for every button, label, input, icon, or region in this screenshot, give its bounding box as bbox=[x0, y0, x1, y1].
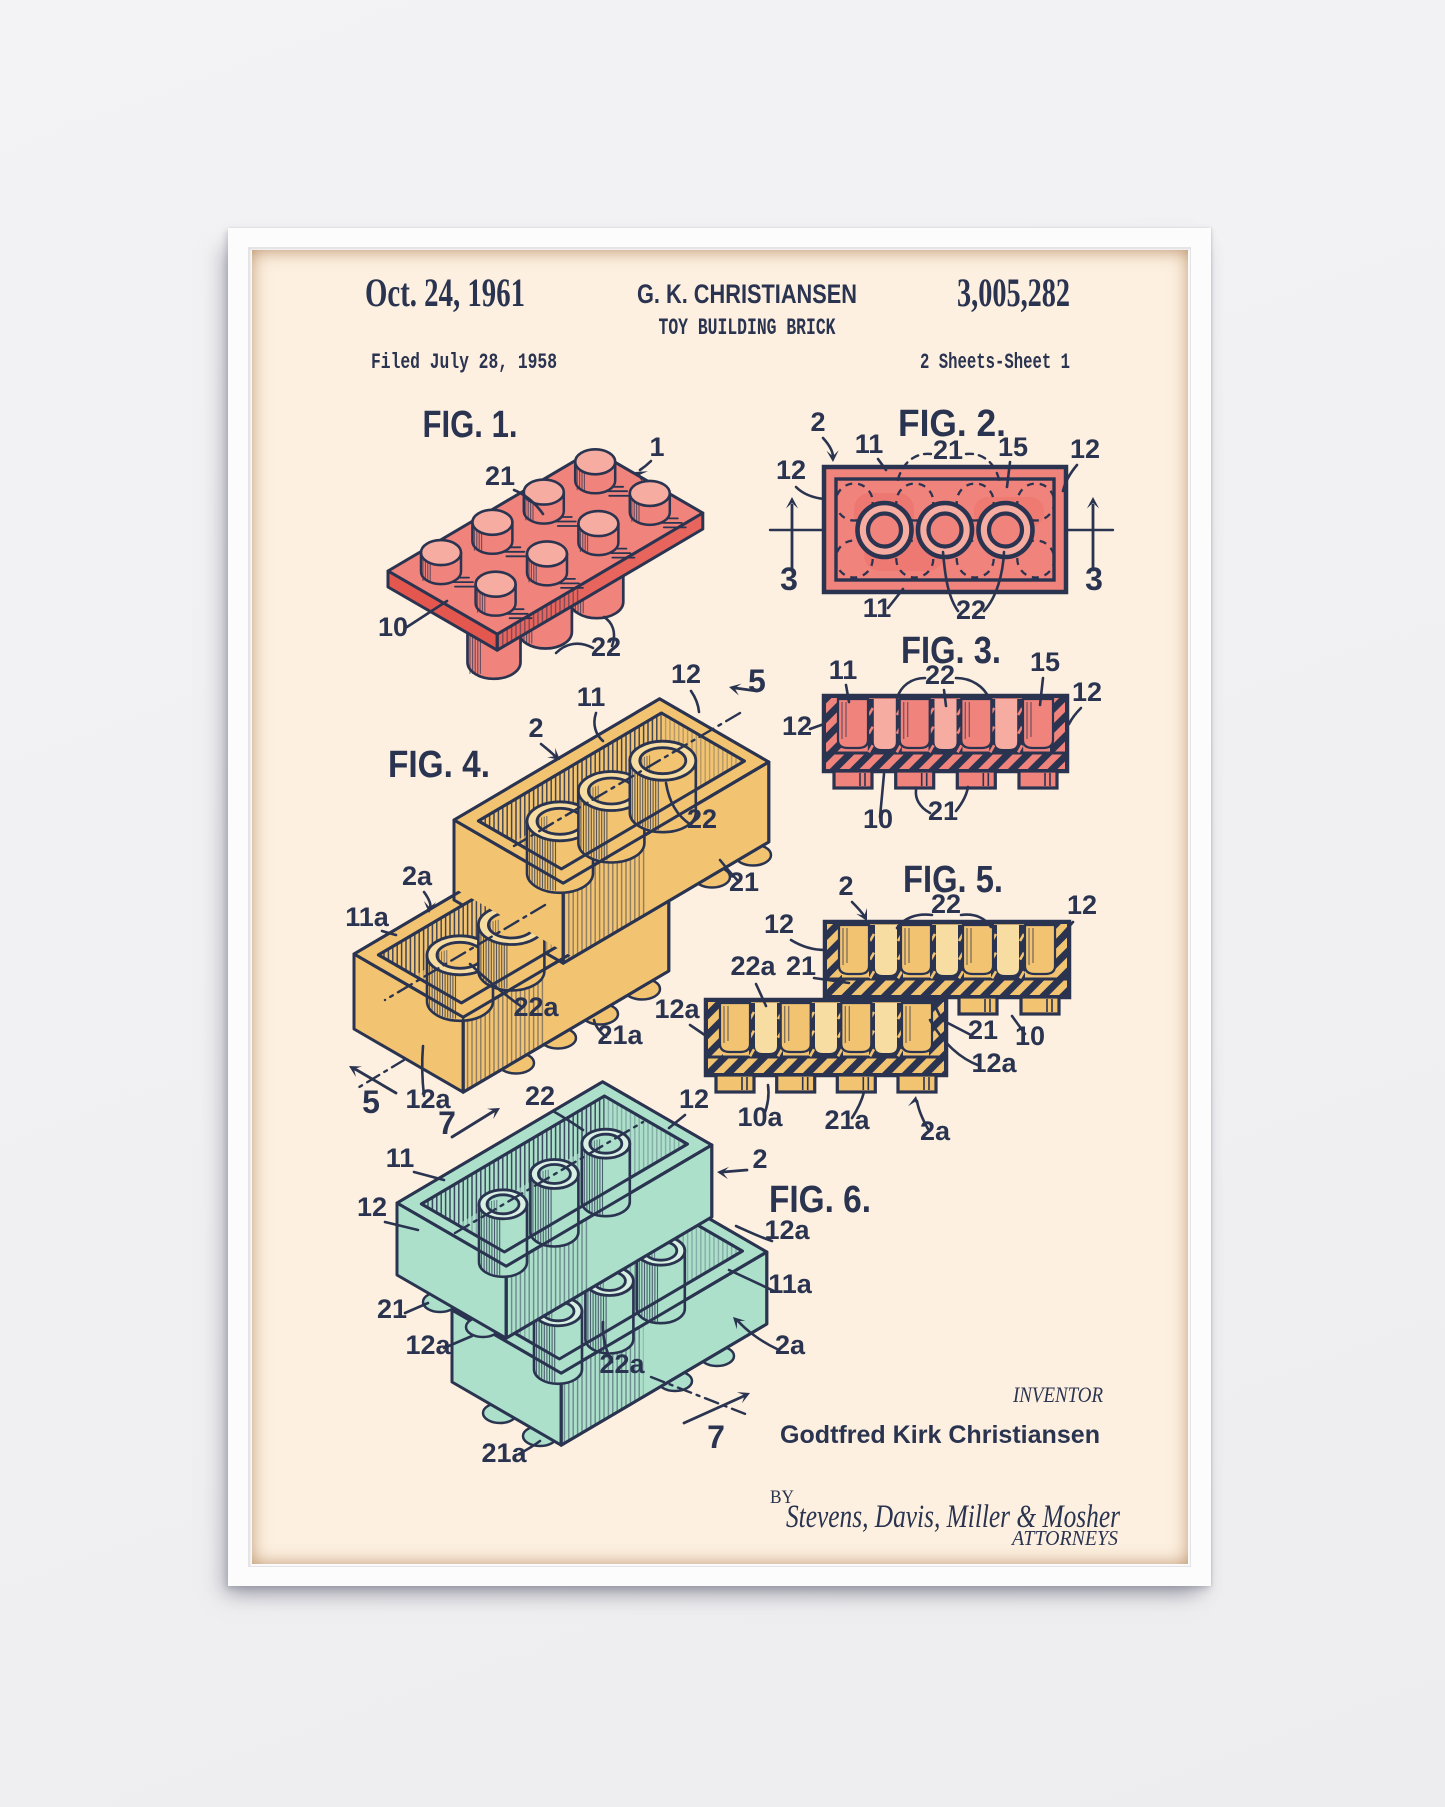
svg-text:2: 2 bbox=[810, 407, 825, 437]
svg-text:2a: 2a bbox=[775, 1330, 806, 1360]
svg-text:12: 12 bbox=[679, 1084, 709, 1114]
svg-text:11a: 11a bbox=[345, 902, 390, 932]
svg-text:21a: 21a bbox=[824, 1105, 870, 1135]
svg-text:22: 22 bbox=[591, 632, 621, 662]
svg-text:12: 12 bbox=[776, 455, 806, 485]
svg-text:22: 22 bbox=[687, 804, 717, 834]
svg-text:11: 11 bbox=[577, 682, 606, 712]
svg-text:FIG. 1.: FIG. 1. bbox=[423, 404, 518, 446]
svg-text:11: 11 bbox=[855, 429, 884, 459]
svg-text:12: 12 bbox=[1070, 434, 1100, 464]
svg-text:3: 3 bbox=[1085, 561, 1103, 597]
svg-text:10a: 10a bbox=[737, 1102, 783, 1132]
svg-text:22: 22 bbox=[925, 660, 955, 690]
svg-text:21: 21 bbox=[377, 1294, 407, 1324]
svg-text:22a: 22a bbox=[599, 1349, 645, 1379]
svg-text:22a: 22a bbox=[730, 951, 776, 981]
svg-text:11a: 11a bbox=[768, 1269, 813, 1299]
svg-text:12: 12 bbox=[1067, 890, 1097, 920]
svg-text:22: 22 bbox=[956, 595, 986, 625]
svg-text:INVENTOR: INVENTOR bbox=[1012, 1382, 1103, 1407]
svg-text:15: 15 bbox=[998, 432, 1028, 462]
svg-text:Oct. 24, 1961: Oct. 24, 1961 bbox=[365, 270, 525, 315]
svg-text:12: 12 bbox=[782, 711, 812, 741]
svg-text:TOY BUILDING BRICK: TOY BUILDING BRICK bbox=[659, 315, 836, 341]
svg-text:3,005,282: 3,005,282 bbox=[957, 270, 1070, 315]
svg-text:15: 15 bbox=[1030, 647, 1060, 677]
svg-text:FIG. 4.: FIG. 4. bbox=[388, 744, 490, 786]
svg-text:21: 21 bbox=[786, 951, 816, 981]
svg-text:21: 21 bbox=[485, 461, 515, 491]
svg-text:11: 11 bbox=[829, 655, 858, 685]
svg-text:12: 12 bbox=[671, 659, 701, 689]
svg-text:10: 10 bbox=[378, 612, 408, 642]
svg-text:22: 22 bbox=[931, 889, 961, 919]
svg-text:G. K. CHRISTIANSEN: G. K. CHRISTIANSEN bbox=[637, 279, 857, 309]
svg-text:21: 21 bbox=[933, 435, 963, 465]
svg-text:7: 7 bbox=[438, 1105, 456, 1141]
svg-text:22: 22 bbox=[525, 1081, 555, 1111]
svg-text:3: 3 bbox=[780, 561, 798, 597]
svg-text:21: 21 bbox=[928, 796, 958, 826]
svg-text:7: 7 bbox=[707, 1419, 725, 1455]
svg-text:Filed July 28, 1958: Filed July 28, 1958 bbox=[371, 350, 557, 375]
svg-text:21: 21 bbox=[729, 867, 759, 897]
svg-text:12a: 12a bbox=[971, 1048, 1017, 1078]
svg-text:5: 5 bbox=[748, 663, 766, 699]
svg-text:2a: 2a bbox=[402, 861, 433, 891]
svg-text:2: 2 bbox=[752, 1144, 767, 1174]
svg-text:21: 21 bbox=[968, 1015, 998, 1045]
svg-text:10: 10 bbox=[863, 804, 893, 834]
svg-text:2: 2 bbox=[838, 871, 853, 901]
svg-text:12: 12 bbox=[1072, 677, 1102, 707]
svg-text:12: 12 bbox=[357, 1192, 387, 1222]
svg-text:11: 11 bbox=[386, 1143, 415, 1173]
svg-text:12a: 12a bbox=[405, 1330, 451, 1360]
svg-text:12a: 12a bbox=[654, 994, 700, 1024]
svg-text:1: 1 bbox=[649, 432, 664, 462]
svg-text:12: 12 bbox=[764, 909, 794, 939]
svg-text:2: 2 bbox=[528, 713, 543, 743]
svg-text:ATTORNEYS: ATTORNEYS bbox=[1010, 1526, 1118, 1550]
svg-text:Godtfred Kirk Christiansen: Godtfred Kirk Christiansen bbox=[780, 1421, 1100, 1449]
svg-text:5: 5 bbox=[362, 1084, 380, 1120]
svg-text:2 Sheets-Sheet 1: 2 Sheets-Sheet 1 bbox=[920, 350, 1070, 375]
